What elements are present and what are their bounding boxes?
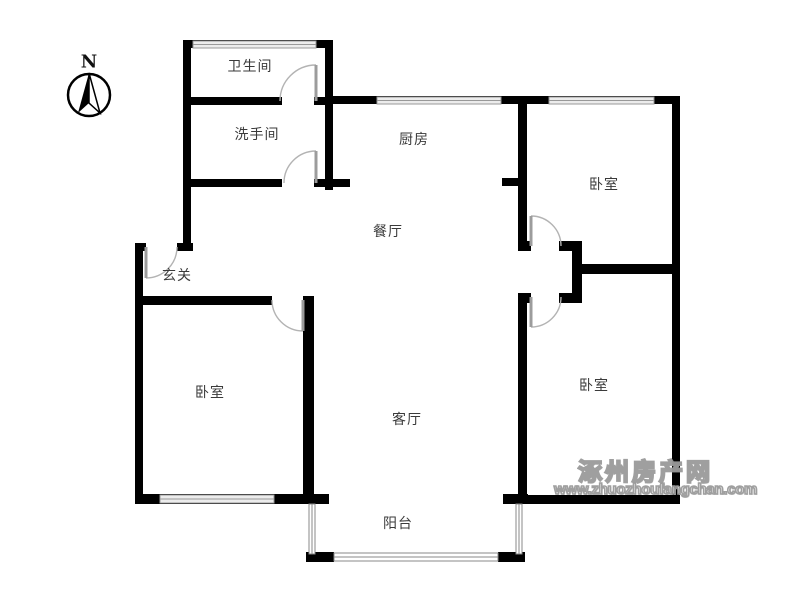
- compass-north-label: N: [81, 52, 97, 73]
- door-arc: [284, 151, 316, 183]
- window: [377, 97, 501, 104]
- wall: [303, 296, 314, 504]
- door-arc: [531, 216, 561, 246]
- room-label-bathroom: 卫生间: [228, 56, 273, 76]
- wall: [325, 40, 333, 190]
- balcony-railing: [309, 504, 315, 554]
- floorplan-canvas: N 卫生间 洗手间 厨房 卧室 餐厅 玄关 卧室 客厅 卧室 阳台 涿州房产网 …: [0, 0, 800, 600]
- room-label-washroom: 洗手间: [235, 124, 280, 144]
- wall: [135, 296, 272, 305]
- balcony-railing: [516, 504, 522, 554]
- balcony-railing: [334, 553, 498, 561]
- north-compass-icon: [68, 73, 110, 116]
- wall: [183, 40, 191, 251]
- wall: [577, 264, 677, 274]
- room-label-living: 客厅: [392, 409, 422, 429]
- wall: [183, 97, 282, 105]
- wall: [518, 96, 527, 250]
- door-arc: [272, 300, 303, 331]
- floorplan-drawing: [0, 0, 800, 600]
- room-label-bedroom-ne: 卧室: [589, 174, 619, 194]
- wall: [559, 293, 582, 303]
- wall: [518, 293, 527, 504]
- window: [193, 41, 316, 48]
- wall: [303, 494, 329, 504]
- wall: [314, 179, 350, 187]
- wall: [672, 96, 680, 504]
- room-label-dining: 餐厅: [373, 221, 403, 241]
- wall: [183, 179, 282, 187]
- wall: [518, 241, 531, 251]
- room-label-balcony: 阳台: [383, 513, 413, 533]
- window: [160, 495, 274, 503]
- room-label-kitchen: 厨房: [399, 129, 429, 149]
- balcony-railings: [309, 504, 522, 561]
- window: [549, 97, 654, 104]
- room-label-entrance: 玄关: [162, 265, 192, 285]
- wall: [177, 243, 193, 251]
- door-arc: [531, 297, 561, 327]
- wall: [135, 243, 143, 504]
- room-label-bedroom-se: 卧室: [579, 375, 609, 395]
- watermark-site-url: www.zhuozhoufangchan.com: [554, 481, 757, 498]
- room-label-bedroom-w: 卧室: [195, 382, 225, 402]
- door-arc: [280, 65, 316, 101]
- wall: [502, 178, 519, 186]
